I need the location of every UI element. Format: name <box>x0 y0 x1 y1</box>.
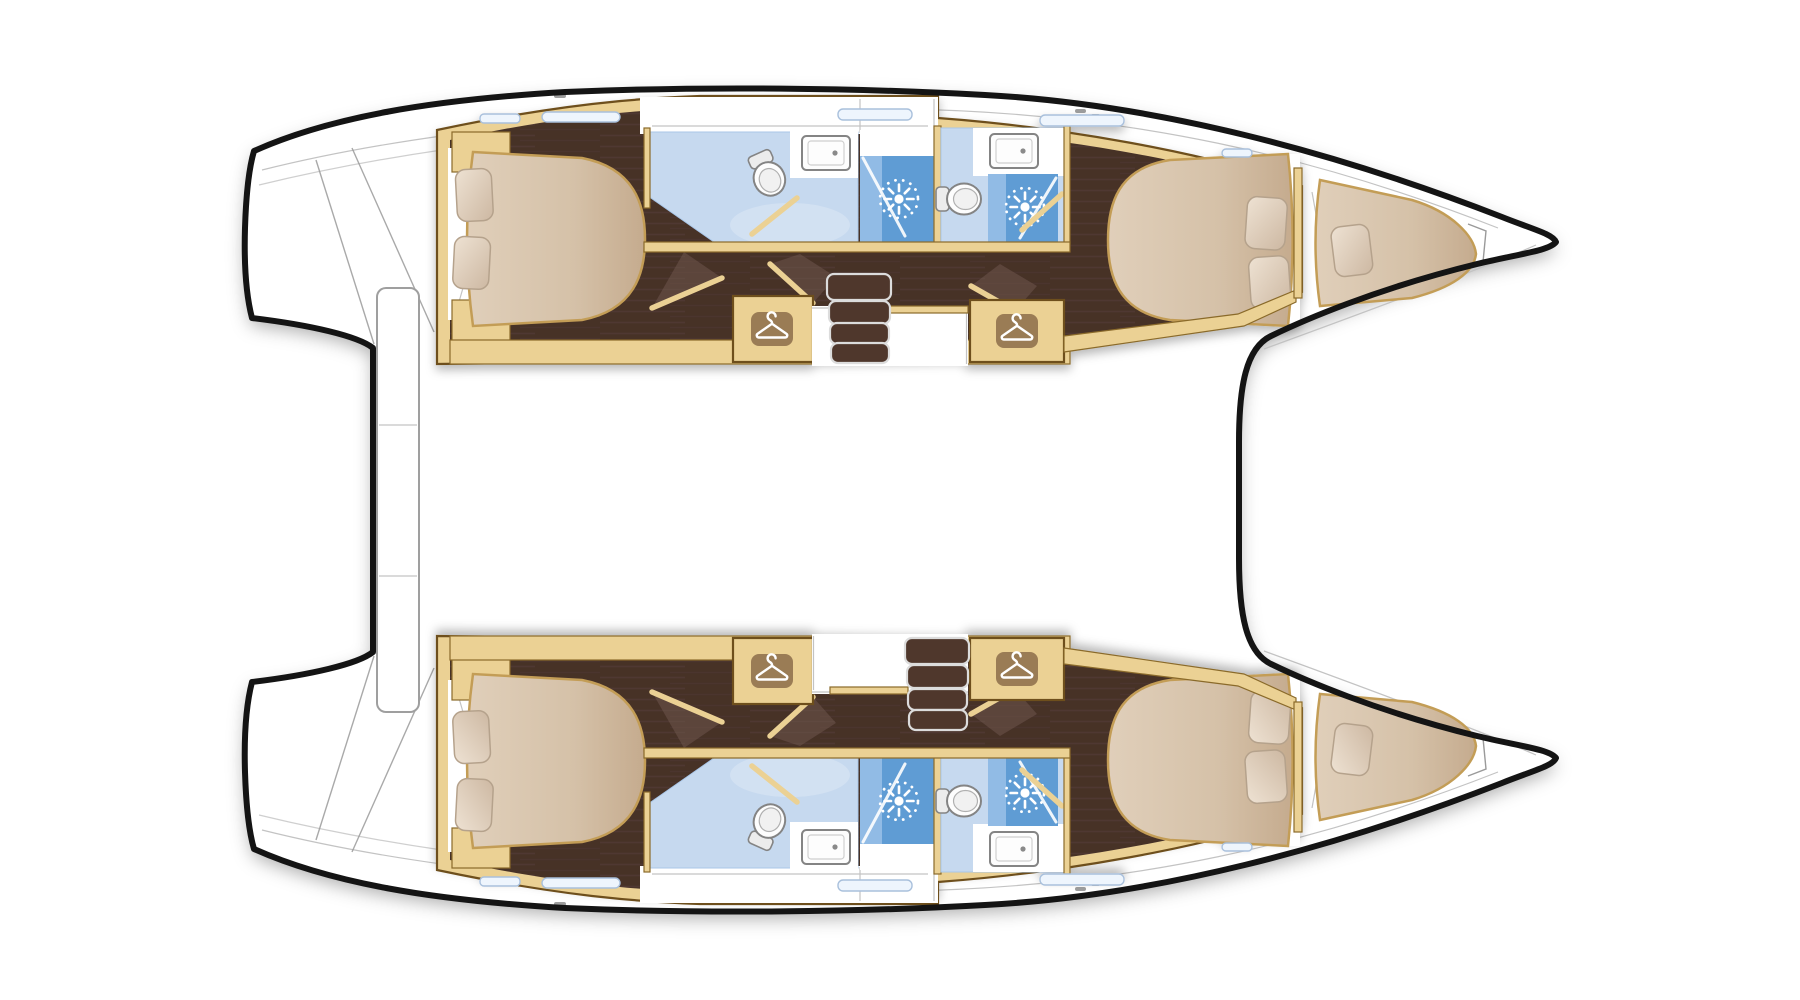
companionway-step <box>827 274 891 300</box>
companionway-step <box>830 323 889 344</box>
companionway-step <box>908 689 967 710</box>
companionway-step <box>907 665 968 688</box>
companionway-step <box>831 343 889 363</box>
threshold <box>830 687 908 694</box>
wardrobe-hanger-icon <box>751 312 793 346</box>
threshold <box>890 306 968 313</box>
companionway-step <box>829 301 890 324</box>
companionway-step <box>905 638 969 664</box>
companionway-step <box>909 710 967 730</box>
catamaran-floor-plan <box>0 0 1800 1000</box>
wardrobe-hanger-icon <box>751 654 793 688</box>
floor-plan-canvas <box>0 0 1800 1000</box>
wardrobe-hanger-icon <box>996 314 1038 348</box>
aft-beam <box>377 288 419 712</box>
wardrobe-hanger-icon <box>996 652 1038 686</box>
